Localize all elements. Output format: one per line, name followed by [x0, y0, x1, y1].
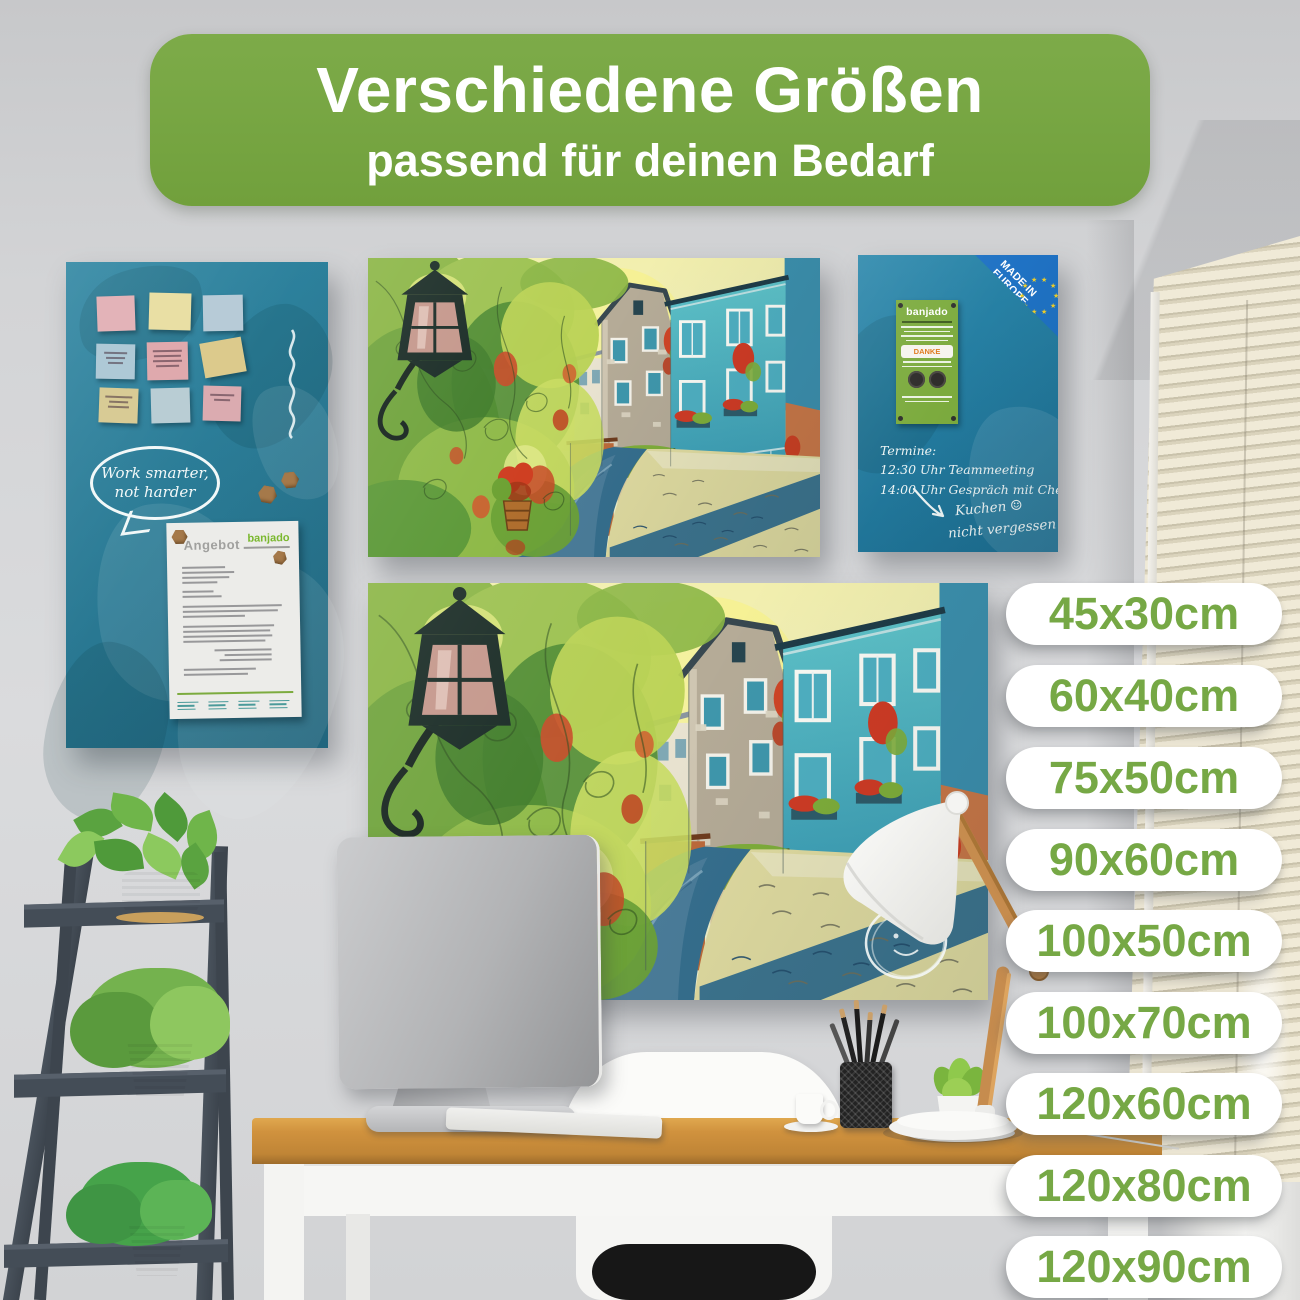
- sticky-note: [98, 387, 138, 423]
- handwritten-schedule: Termine: 12:30 Uhr Teammeeting 14:00 Uhr…: [880, 441, 1058, 499]
- dog-photo: [929, 371, 946, 388]
- pinned-document: Angebot banjado: [166, 521, 301, 719]
- sticky-note: [96, 295, 135, 331]
- watercolor-artwork: [368, 258, 820, 557]
- size-badge: 45x30cm: [1006, 583, 1282, 645]
- magnet-dot: [951, 416, 956, 421]
- sticky-note: [149, 292, 192, 330]
- dog-photo: [908, 371, 925, 388]
- sticky-note: [96, 344, 136, 380]
- sticky-note: [151, 387, 191, 423]
- coffee-cup: [796, 1094, 823, 1124]
- plant-leaf: [94, 835, 144, 875]
- eu-star-icon: ★: [1041, 277, 1047, 284]
- schedule-heading: Termine:: [880, 441, 1058, 460]
- pot-saucer: [116, 912, 204, 923]
- size-badge: 90x60cm: [1006, 829, 1282, 891]
- eu-star-icon: ★: [1019, 293, 1025, 300]
- bubble-text-line2: not harder: [93, 483, 217, 503]
- plant-pot: [126, 1226, 188, 1276]
- document-title: Angebot: [184, 537, 240, 553]
- chair-cushion: [592, 1244, 816, 1300]
- document-body-lines: [182, 565, 287, 679]
- flyer-thanks-label: DANKE: [901, 345, 953, 358]
- size-badge: 100x70cm: [1006, 992, 1282, 1054]
- document-footer-columns: [177, 699, 293, 712]
- magnet-dot: [898, 416, 903, 421]
- marker-squiggle: [284, 328, 300, 440]
- cork-magnet: [272, 550, 289, 566]
- magnet-dot: [951, 303, 956, 308]
- desk-leg: [346, 1214, 370, 1300]
- imac-computer: [337, 835, 603, 1090]
- document-brand-tagline: [244, 546, 290, 549]
- flyer-brand-logo: banjado: [896, 306, 958, 318]
- magnet-board-medium: [368, 258, 820, 557]
- product-flyer: banjado DANKE: [896, 300, 958, 424]
- eu-star-icon: ★: [1050, 283, 1056, 290]
- size-badge: 75x50cm: [1006, 747, 1282, 809]
- magnet-dot: [898, 303, 903, 308]
- eu-star-icon: ★: [1022, 283, 1028, 290]
- made-in-europe-corner: MADE IN EUROPE ★ ★ ★ ★ ★ ★ ★ ★ ★ ★: [966, 255, 1058, 341]
- eu-star-icon: ★: [1022, 303, 1028, 310]
- eu-star-icon: ★: [1031, 277, 1037, 284]
- schedule-entry: 12:30 Uhr Teammeeting: [880, 460, 1058, 479]
- eu-star-icon: ★: [1053, 293, 1058, 300]
- sticky-note: [203, 295, 244, 332]
- size-badge: 120x90cm: [1006, 1236, 1282, 1298]
- eu-star-icon: ★: [1031, 309, 1037, 316]
- eu-star-icon: ★: [1041, 309, 1047, 316]
- banner-subtitle: passend für deinen Bedarf: [366, 135, 934, 187]
- schedule-entry: 14:00 Uhr Gespräch mit Chefin: [880, 480, 1058, 499]
- sticky-note: [147, 342, 189, 381]
- sticky-note: [203, 386, 242, 422]
- size-badge: 120x60cm: [1006, 1073, 1282, 1135]
- sticky-note: [199, 337, 246, 379]
- banner-title: Verschiedene Größen: [316, 53, 984, 127]
- shelf-board: [14, 1069, 226, 1098]
- size-badge: 100x50cm: [1006, 910, 1282, 972]
- eu-star-icon: ★: [1050, 303, 1056, 310]
- bubble-text-line1: Work smarter,: [93, 464, 217, 484]
- magnet-board-small: MADE IN EUROPE ★ ★ ★ ★ ★ ★ ★ ★ ★ ★ banja…: [858, 255, 1058, 552]
- size-badge: 120x80cm: [1006, 1155, 1282, 1217]
- smiley-doodle: ☺: [1010, 498, 1023, 514]
- headline-banner: Verschiedene Größen passend für deinen B…: [150, 34, 1150, 206]
- document-brand-logo: banjado: [247, 532, 289, 545]
- desk-leg: [264, 1164, 304, 1300]
- document-divider: [177, 691, 293, 695]
- handwritten-arrow: [910, 487, 952, 523]
- product-scene: Work smarter, not harder Angebot banjado: [0, 0, 1300, 1300]
- size-badge: 60x40cm: [1006, 665, 1282, 727]
